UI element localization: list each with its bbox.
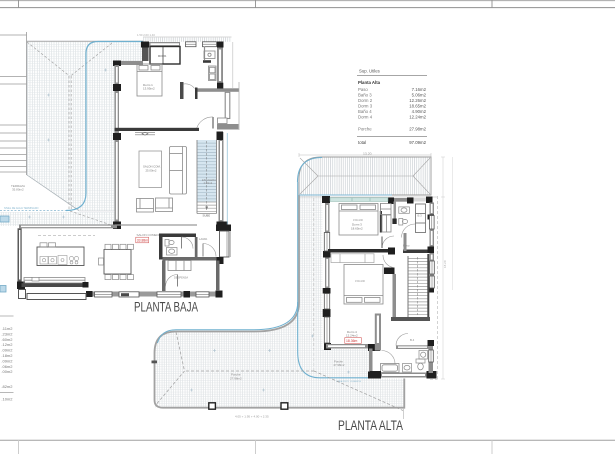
svg-text:13.20: 13.20 bbox=[363, 152, 372, 156]
svg-text:12.24m2: 12.24m2 bbox=[409, 115, 426, 120]
svg-text:97.09m2: 97.09m2 bbox=[409, 140, 426, 145]
svg-text:Planta Alta: Planta Alta bbox=[358, 80, 381, 85]
svg-text:25.00m2: 25.00m2 bbox=[146, 168, 157, 172]
svg-text:18.36m: 18.36m bbox=[346, 339, 357, 343]
svg-text:12.26m2: 12.26m2 bbox=[409, 98, 426, 103]
svg-text:.10m2: .10m2 bbox=[1, 397, 13, 402]
svg-text:B.4: B.4 bbox=[410, 338, 415, 342]
svg-text:27.98m2: 27.98m2 bbox=[409, 127, 426, 132]
svg-text:.11m2: .11m2 bbox=[2, 326, 14, 331]
svg-text:18.20: 18.20 bbox=[443, 260, 447, 268]
svg-text:.60m2: .60m2 bbox=[1, 337, 13, 342]
svg-text:NIVEL DE AGUA TERMINADO: NIVEL DE AGUA TERMINADO bbox=[4, 207, 39, 210]
svg-text:18.65m2: 18.65m2 bbox=[409, 104, 426, 109]
svg-text:27.98m2: 27.98m2 bbox=[230, 376, 242, 380]
svg-text:PLANTA BAJA: PLANTA BAJA bbox=[134, 300, 198, 315]
svg-text:Porche: Porche bbox=[358, 127, 372, 132]
svg-text:Baño 3: Baño 3 bbox=[358, 93, 372, 98]
svg-text:.09m2: .09m2 bbox=[1, 358, 13, 363]
svg-text:ROPA: ROPA bbox=[158, 54, 166, 58]
svg-text:Dorm 4: Dorm 4 bbox=[358, 115, 373, 120]
svg-text:.09m2: .09m2 bbox=[1, 348, 13, 353]
svg-text:4.90m2: 4.90m2 bbox=[412, 109, 427, 114]
svg-text:SUBE: SUBE bbox=[203, 214, 211, 218]
svg-text:Paso: Paso bbox=[403, 244, 410, 248]
svg-text:.23m2: .23m2 bbox=[1, 331, 13, 336]
svg-text:LINEA PROY. CUBIERTA: LINEA PROY. CUBIERTA bbox=[336, 380, 361, 383]
svg-text:LAVAD.: LAVAD. bbox=[199, 237, 208, 241]
svg-text:.82m2: .82m2 bbox=[1, 384, 13, 389]
svg-text:DESPENSA: DESPENSA bbox=[174, 276, 188, 280]
svg-text:150x190: 150x190 bbox=[353, 218, 364, 222]
svg-text:150x190: 150x190 bbox=[355, 279, 366, 283]
svg-text:Baño 4: Baño 4 bbox=[358, 109, 372, 114]
svg-text:B.3: B.3 bbox=[418, 214, 423, 218]
svg-text:Paso: Paso bbox=[358, 87, 368, 92]
svg-text:.06m2: .06m2 bbox=[1, 364, 13, 369]
svg-text:.00m2: .00m2 bbox=[1, 369, 13, 374]
svg-text:PLANTA ALTA: PLANTA ALTA bbox=[338, 418, 403, 433]
svg-text:1.50 2.60 1.40: 1.50 2.60 1.40 bbox=[137, 33, 155, 37]
svg-text:27.98m2: 27.98m2 bbox=[334, 363, 345, 367]
svg-text:4.05 + 1.95 + 4.00 + 2.35: 4.05 + 1.95 + 4.00 + 2.35 bbox=[235, 415, 269, 419]
svg-text:7.16m2: 7.16m2 bbox=[412, 87, 427, 92]
svg-text:.12m2: .12m2 bbox=[1, 342, 13, 347]
svg-text:35.80m2: 35.80m2 bbox=[12, 188, 24, 192]
svg-text:13.95m2: 13.95m2 bbox=[143, 87, 155, 91]
svg-text:12.24m2: 12.24m2 bbox=[346, 334, 358, 338]
svg-text:33.88m: 33.88m bbox=[137, 239, 148, 243]
svg-text:4.30m2: 4.30m2 bbox=[204, 181, 213, 185]
svg-text:Dorm 3: Dorm 3 bbox=[358, 104, 373, 109]
svg-text:total: total bbox=[358, 140, 366, 145]
svg-text:Sup. Utiles: Sup. Utiles bbox=[359, 69, 380, 74]
svg-text:18.65m2: 18.65m2 bbox=[351, 227, 363, 231]
svg-text:Dorm 2: Dorm 2 bbox=[358, 98, 373, 103]
svg-text:.18m2: .18m2 bbox=[1, 353, 13, 358]
svg-text:5.06m2: 5.06m2 bbox=[412, 93, 427, 98]
